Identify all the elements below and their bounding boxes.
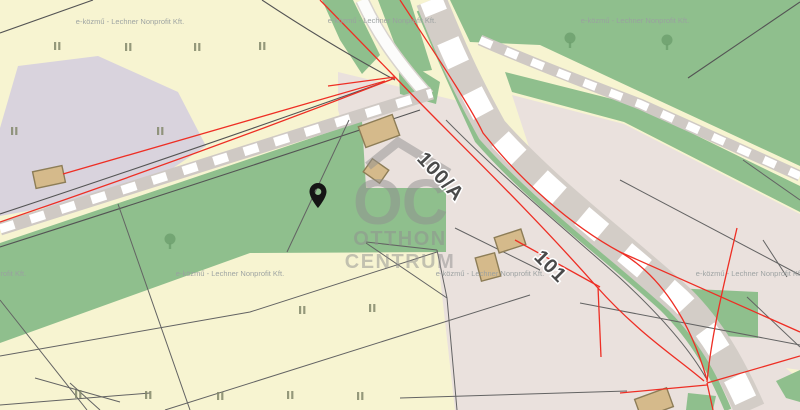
watermark-text: e-közmű - Lechner Nonprofit Kft. — [696, 269, 800, 278]
watermark-text: e-közmű - Lechner Nonprofit Kft. — [581, 16, 689, 25]
brand-line1: OTTHON — [353, 228, 446, 250]
watermark-text: e-közmű - Lechner Nonprofit Kft. — [0, 269, 26, 278]
map-viewport[interactable]: OC OTTHON CENTRUM 100/A 101 e-közmű - Le… — [0, 0, 800, 410]
watermark-text: e-közmű - Lechner Nonprofit Kft. — [328, 16, 436, 25]
watermark-text: e-közmű - Lechner Nonprofit Kft. — [76, 17, 184, 26]
watermark-text: e-közmű - Lechner Nonprofit Kft. — [176, 269, 284, 278]
map-canvas[interactable]: OC OTTHON CENTRUM 100/A 101 e-közmű - Le… — [0, 0, 800, 410]
watermark-text: e-közmű - Lechner Nonprofit Kft. — [436, 269, 544, 278]
